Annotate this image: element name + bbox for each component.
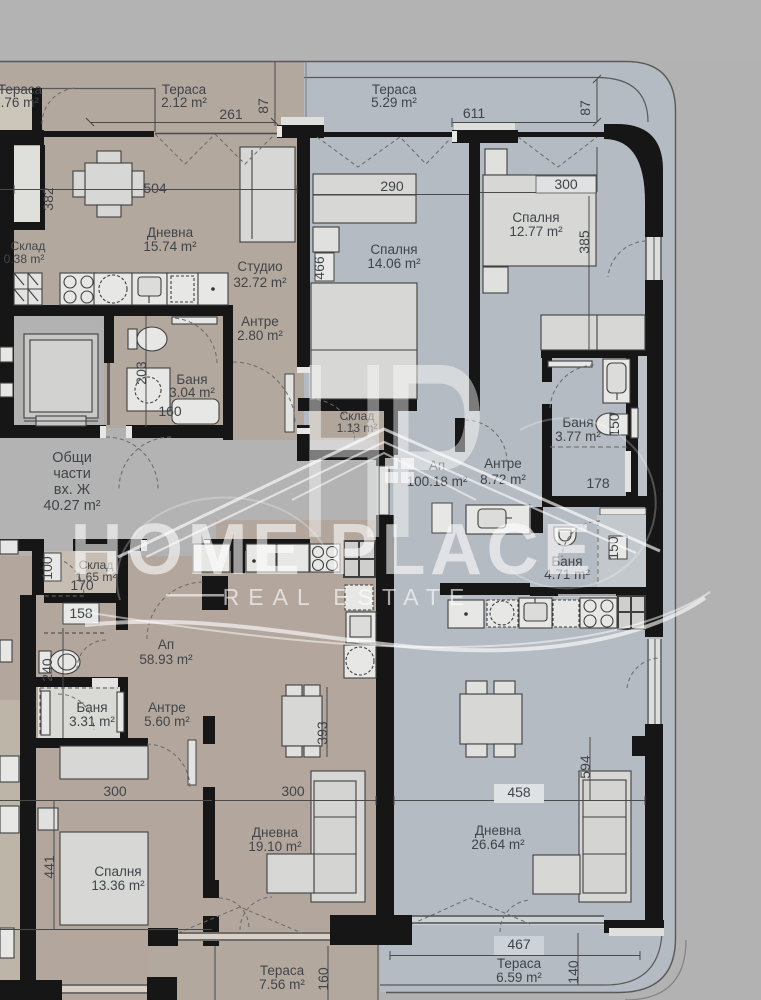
svg-text:1.76 m²: 1.76 m² (0, 95, 39, 110)
svg-text:300: 300 (103, 783, 127, 799)
svg-text:Дневна: Дневна (252, 825, 299, 840)
svg-text:32.72 m²: 32.72 m² (233, 275, 287, 290)
svg-text:12.77 m²: 12.77 m² (509, 224, 563, 239)
svg-text:290: 290 (380, 178, 404, 194)
svg-text:Дневна: Дневна (475, 823, 522, 838)
svg-text:240: 240 (39, 658, 55, 682)
svg-text:Тераса: Тераса (497, 956, 542, 971)
svg-text:Склад: Склад (11, 239, 46, 253)
svg-text:Антре: Антре (148, 700, 186, 715)
svg-text:15.74 m²: 15.74 m² (143, 239, 197, 254)
svg-text:2.80 m²: 2.80 m² (237, 328, 283, 343)
svg-text:3.77 m²: 3.77 m² (555, 429, 601, 444)
svg-text:Спалня: Спалня (512, 210, 559, 225)
svg-text:Баня: Баня (76, 700, 107, 715)
svg-text:178: 178 (586, 475, 610, 491)
svg-text:300: 300 (281, 783, 305, 799)
svg-text:Антре: Антре (241, 314, 279, 329)
svg-text:261: 261 (219, 106, 243, 122)
svg-text:6.59 m²: 6.59 m² (496, 970, 542, 985)
svg-text:Спалня: Спалня (94, 864, 141, 879)
svg-text:5.60 m²: 5.60 m² (144, 714, 190, 729)
svg-text:385: 385 (576, 230, 592, 254)
svg-text:504: 504 (143, 180, 167, 196)
svg-text:19.10 m²: 19.10 m² (248, 839, 302, 854)
svg-text:Общи: Общи (52, 450, 92, 466)
svg-text:14.06 m²: 14.06 m² (367, 256, 421, 271)
svg-text:466: 466 (311, 256, 327, 280)
svg-text:части: части (53, 466, 91, 482)
svg-text:300: 300 (554, 176, 578, 192)
svg-text:594: 594 (577, 755, 593, 779)
svg-text:Дневна: Дневна (147, 225, 194, 240)
svg-text:7.56 m²: 7.56 m² (259, 977, 305, 992)
svg-text:160: 160 (158, 403, 182, 419)
svg-text:Антре: Антре (484, 456, 522, 471)
svg-text:150: 150 (606, 413, 622, 437)
svg-text:87: 87 (577, 100, 593, 116)
svg-text:467: 467 (507, 936, 531, 952)
svg-text:203: 203 (133, 361, 149, 385)
svg-text:13.36 m²: 13.36 m² (91, 878, 145, 893)
svg-text:2.12 m²: 2.12 m² (161, 95, 207, 110)
svg-text:3.31 m²: 3.31 m² (69, 714, 115, 729)
svg-text:Ап: Ап (158, 637, 174, 652)
svg-text:611: 611 (463, 105, 486, 121)
svg-text:0.38 m²: 0.38 m² (4, 252, 45, 266)
svg-text:87: 87 (255, 98, 271, 114)
svg-text:Студио: Студио (237, 259, 282, 274)
svg-text:160: 160 (315, 967, 331, 991)
svg-text:Тераса: Тераса (260, 963, 305, 978)
svg-text:вх. Ж: вх. Ж (54, 482, 91, 498)
svg-text:REAL ESTATE: REAL ESTATE (223, 584, 474, 610)
svg-text:26.64 m²: 26.64 m² (471, 837, 525, 852)
svg-text:441: 441 (41, 855, 57, 879)
svg-text:458: 458 (507, 784, 531, 800)
svg-text:3.04 m²: 3.04 m² (169, 385, 215, 400)
svg-text:393: 393 (314, 721, 330, 745)
svg-text:Спалня: Спалня (370, 242, 417, 257)
svg-text:100: 100 (39, 556, 55, 580)
svg-text:140: 140 (565, 960, 581, 984)
svg-text:382: 382 (40, 187, 56, 211)
svg-text:58.93 m²: 58.93 m² (139, 652, 193, 667)
svg-text:5.29 m²: 5.29 m² (371, 95, 417, 110)
